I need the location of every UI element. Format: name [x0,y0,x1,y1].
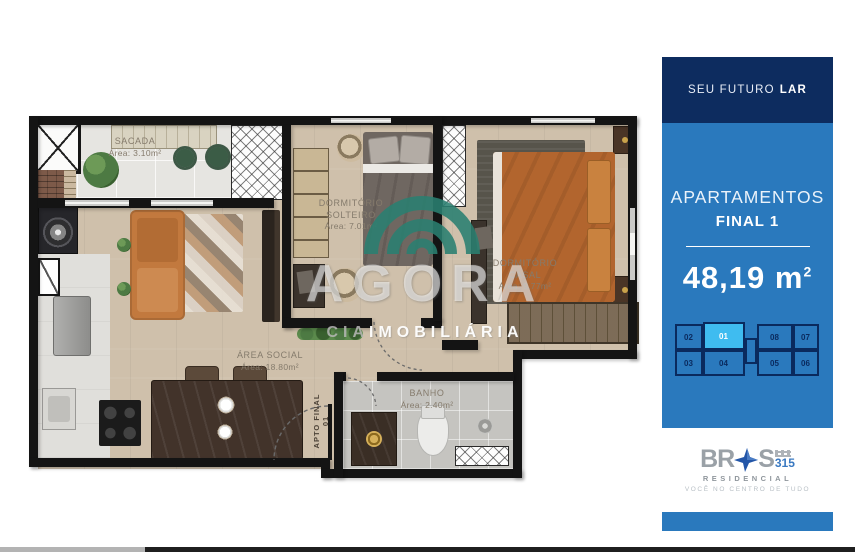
brand-row: BR S 315 [700,447,795,472]
brand-tagline: VOCÊ NO CENTRO DE TUDO [685,486,810,493]
sidebar-body: APARTAMENTOS FINAL 1 48,19 m2 02 01 08 0… [662,123,833,428]
floorplate-diagram: 02 01 08 07 03 04 05 06 [673,322,823,380]
room-area: Área: 3.10m² [70,148,200,159]
unit-03[interactable]: 03 [675,350,703,376]
brand-letters-left: BR [700,447,734,472]
wall-segment [513,350,522,478]
room-label-banho: BANHO Área: 2.40m² [375,388,479,411]
unit-06[interactable]: 06 [793,350,819,376]
pillow [399,135,431,166]
plant-icon [117,238,131,252]
area-value: 48,19 m2 [683,260,813,296]
room-label-sacada: SACADA Área: 3.10m² [70,136,200,159]
bath-vanity [351,412,397,466]
window-icon [531,118,595,123]
bottom-accent-bar [662,512,833,531]
bedside-table [337,134,365,162]
plate [217,396,235,414]
room-name: ÁREA SOCIAL [200,350,340,362]
laundry-shelf [64,170,76,200]
baseline-right [145,547,855,552]
pillow [587,160,611,224]
unit-05[interactable]: 05 [757,350,793,376]
wall-segment [29,116,38,467]
kitchen-sink [42,388,76,430]
window-hatch-icon [231,125,284,200]
pillow [368,136,401,165]
star-icon [734,448,758,472]
sidebar-header: SEU FUTURO LAR [662,57,833,123]
wall-segment [321,469,522,478]
room-label-social: ÁREA SOCIAL Área: 18.80m² [200,350,340,373]
brand-315: 315 [775,450,795,469]
window-icon [331,118,391,123]
unit-07[interactable]: 07 [793,324,819,350]
unit-04[interactable]: 04 [703,350,745,376]
plant-icon [117,282,131,296]
area-unit: m2 [775,260,812,295]
building-core [745,338,757,364]
window-icon [630,208,635,280]
wall-segment [334,372,343,478]
window-icon [65,200,129,206]
apto-line2: 01 [321,416,330,426]
shower-drain-icon [477,418,493,434]
brand-dots-icon [775,450,791,457]
duct-icon [38,258,60,296]
pouf [205,144,231,170]
page: SACADA Área: 3.10m² DORMITÓRIO SOLTEIRO … [0,0,855,552]
brand-residencial: RESIDENCIAL [703,474,792,483]
watermark-imobiliaria: IMOBILIÁRIA [369,324,524,341]
brand-number: 315 [775,457,795,469]
panel-title: APARTAMENTOS [671,187,825,208]
watermark-subtitle: CIAIMOBILIÁRIA [255,324,595,342]
floor-plan: SACADA Área: 3.10m² DORMITÓRIO SOLTEIRO … [25,112,641,480]
wall-segment [513,350,637,359]
washing-machine-icon [38,206,78,254]
unit-08[interactable]: 08 [757,324,793,350]
room-area: Área: 2.40m² [375,400,479,411]
toilet-icon [417,410,449,456]
room-name: SACADA [70,136,200,148]
header-text: SEU FUTURO [688,84,775,96]
watermark-title: AGORA [255,254,595,314]
header-text-bold: LAR [780,84,807,96]
apto-final-label: APTO FINAL 01 [312,391,330,451]
bath-niche-icon [455,446,509,466]
panel-subtitle: FINAL 1 [716,213,779,230]
divider [686,246,810,247]
wall-segment [377,372,514,381]
unit-02[interactable]: 02 [675,324,703,350]
watermark-cia: CIA [326,324,369,341]
bath-door-arc-icon [346,376,378,408]
developer-logo: BR S 315 RESIDENCIAL VOCÊ NO CENTRO DE T… [662,428,833,512]
plate [217,424,233,440]
apto-line1: APTO FINAL [312,394,321,449]
unit-01-selected[interactable]: 01 [703,322,745,350]
room-name: BANHO [375,388,479,400]
room-area: Área: 18.80m² [200,362,340,373]
window-icon [151,200,213,206]
fridge [53,296,91,356]
stove-icon [99,400,141,446]
sofa [130,210,185,320]
baseline-left [0,547,145,552]
brick-wall [38,170,64,200]
brand-letters-right: S [758,447,774,472]
area-number: 48,19 [683,260,766,295]
